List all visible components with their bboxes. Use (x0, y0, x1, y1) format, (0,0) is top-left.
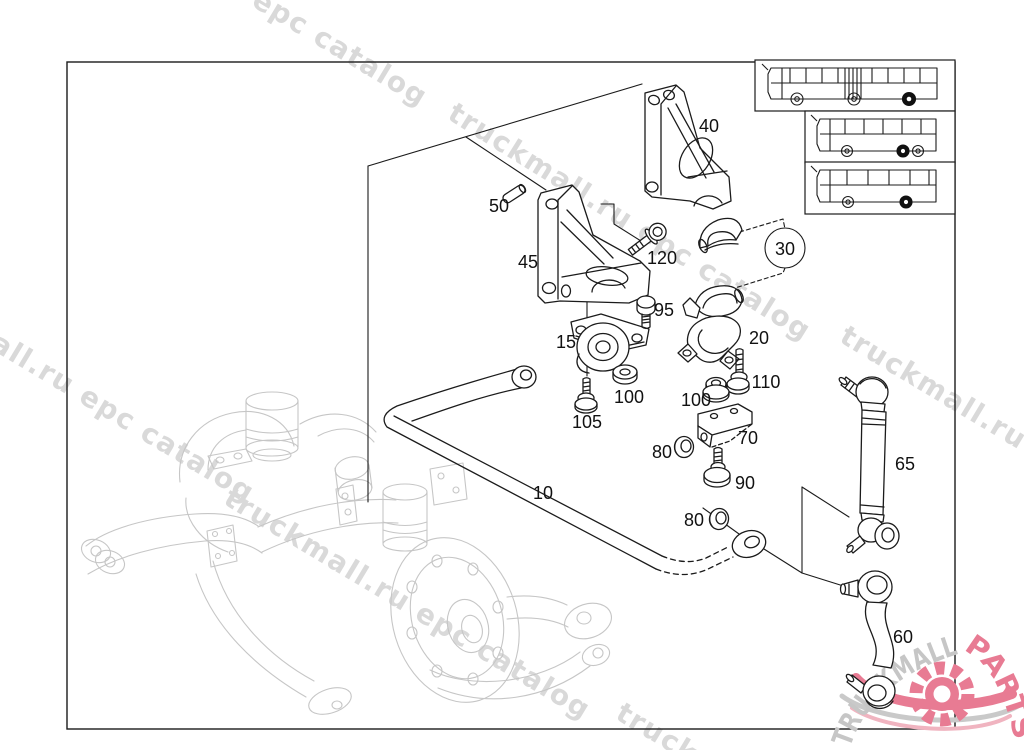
nut-100-left (613, 365, 637, 384)
watermark-text: truckmall.ru epc catalog (218, 481, 597, 727)
bolt-95 (637, 296, 655, 329)
callout-50[interactable]: 50 (489, 196, 509, 216)
variant-articulated-bus[interactable] (755, 60, 955, 111)
variant-coach-tag-axle[interactable] (805, 111, 955, 163)
callout-60[interactable]: 60 (893, 627, 913, 647)
nut-80-lower (708, 507, 730, 531)
callout-80-lower[interactable]: 80 (684, 510, 704, 530)
nut-80-upper (675, 437, 694, 458)
callout-105[interactable]: 105 (572, 412, 602, 432)
bolt-90 (704, 448, 730, 488)
bar-rear-eye (729, 526, 769, 561)
stabilizer-link-65 (838, 376, 899, 553)
watermark-text: truckmall.ru epc catalog (442, 96, 817, 347)
stabilizer-link-60 (841, 571, 896, 708)
stabilizer-bracket-40 (645, 85, 731, 209)
callout-80-upper[interactable]: 80 (652, 442, 672, 462)
bar-front-eye (512, 366, 536, 388)
parts-diagram-canvas: truckmall.ru epc catalog truckmall.ru ep… (0, 0, 1024, 750)
bolt-105 (575, 378, 597, 413)
callout-20[interactable]: 20 (749, 328, 769, 348)
variant-coach[interactable] (805, 162, 955, 214)
callout-65[interactable]: 65 (895, 454, 915, 474)
bushing-half-lower (683, 286, 745, 318)
bearing-clamp-15 (571, 314, 649, 373)
callout-40[interactable]: 40 (699, 116, 719, 136)
callout-100-right[interactable]: 100 (681, 390, 711, 410)
callout-110[interactable]: 110 (752, 372, 781, 392)
callout-100-left[interactable]: 100 (614, 387, 644, 407)
callout-70[interactable]: 70 (738, 428, 758, 448)
watermark-text: truckmall.ru epc catalog (55, 0, 434, 113)
bearing-clamp-20 (678, 316, 740, 369)
gear-icon (916, 668, 968, 720)
callout-45[interactable]: 45 (518, 252, 538, 272)
callout-15[interactable]: 15 (556, 332, 576, 352)
callout-90[interactable]: 90 (735, 473, 755, 493)
callout-120[interactable]: 120 (647, 248, 677, 268)
watermark-text: truckmall.ru epc catalog (0, 264, 261, 510)
vehicle-variant-legend (755, 60, 955, 214)
callout-30[interactable]: 30 (775, 239, 795, 259)
callout-95[interactable]: 95 (654, 300, 674, 320)
callout-10[interactable]: 10 (533, 483, 553, 503)
